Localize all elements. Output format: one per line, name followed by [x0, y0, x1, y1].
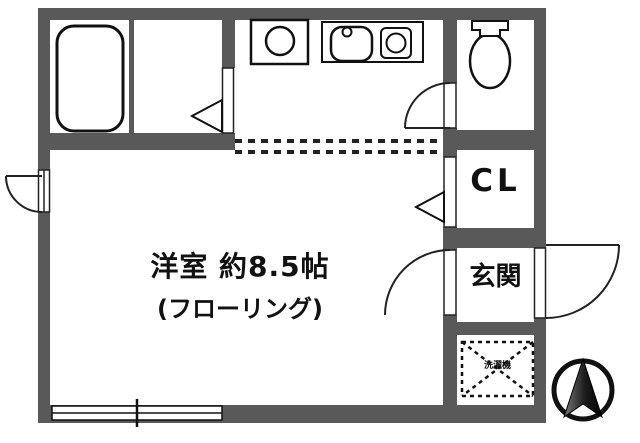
closet-door-leaf [444, 157, 456, 227]
equipment-box-label: 洗濯機 [462, 362, 533, 372]
wall-right-upper [534, 8, 546, 248]
wall-column-a [443, 20, 457, 83]
entrance-inner-door-arc [385, 250, 450, 315]
toilet-tank [472, 21, 508, 36]
main-room-sublabel: (フローリング) [90, 296, 390, 322]
entrance-outer-door-leaf [535, 248, 546, 318]
bathtub-icon [57, 26, 123, 131]
closet-label: CL [457, 164, 534, 198]
wall-entrance-nook [443, 322, 546, 335]
entrance-outer-door-arc [546, 245, 619, 318]
north-compass-icon [554, 359, 612, 419]
washing-machine-icon [251, 20, 308, 64]
left-exterior-door-arc [6, 176, 42, 212]
wall-toilet-bottom [443, 130, 546, 150]
wall-top [38, 8, 546, 20]
washroom-door-triangle [192, 100, 222, 132]
wall-bath-divider [129, 20, 134, 133]
floor-plan-drawing [0, 0, 640, 443]
entrance-inner-door-leaf [444, 250, 456, 315]
main-room-label: 洋室 約8.5帖 [90, 252, 390, 283]
entrance-label: 玄関 [457, 263, 534, 292]
toilet-door-leaf [444, 83, 456, 128]
wall-left-upper [38, 8, 50, 170]
wall-washroom-kitchen [222, 20, 235, 68]
dashed-room-boundary [235, 141, 443, 152]
closet-door-triangle [416, 192, 444, 222]
floor-plan: 洋室 約8.5帖 (フローリング) CL 玄関 洗濯機 [0, 0, 640, 443]
wall-left-lower [38, 212, 50, 423]
washroom-door-leaf [223, 68, 234, 133]
kitchen-counter [322, 22, 423, 62]
toilet-icon [470, 21, 510, 88]
faucet-icon [343, 28, 352, 37]
wall-utility-bottom [50, 133, 235, 150]
wall-cl-entrance [443, 228, 546, 248]
